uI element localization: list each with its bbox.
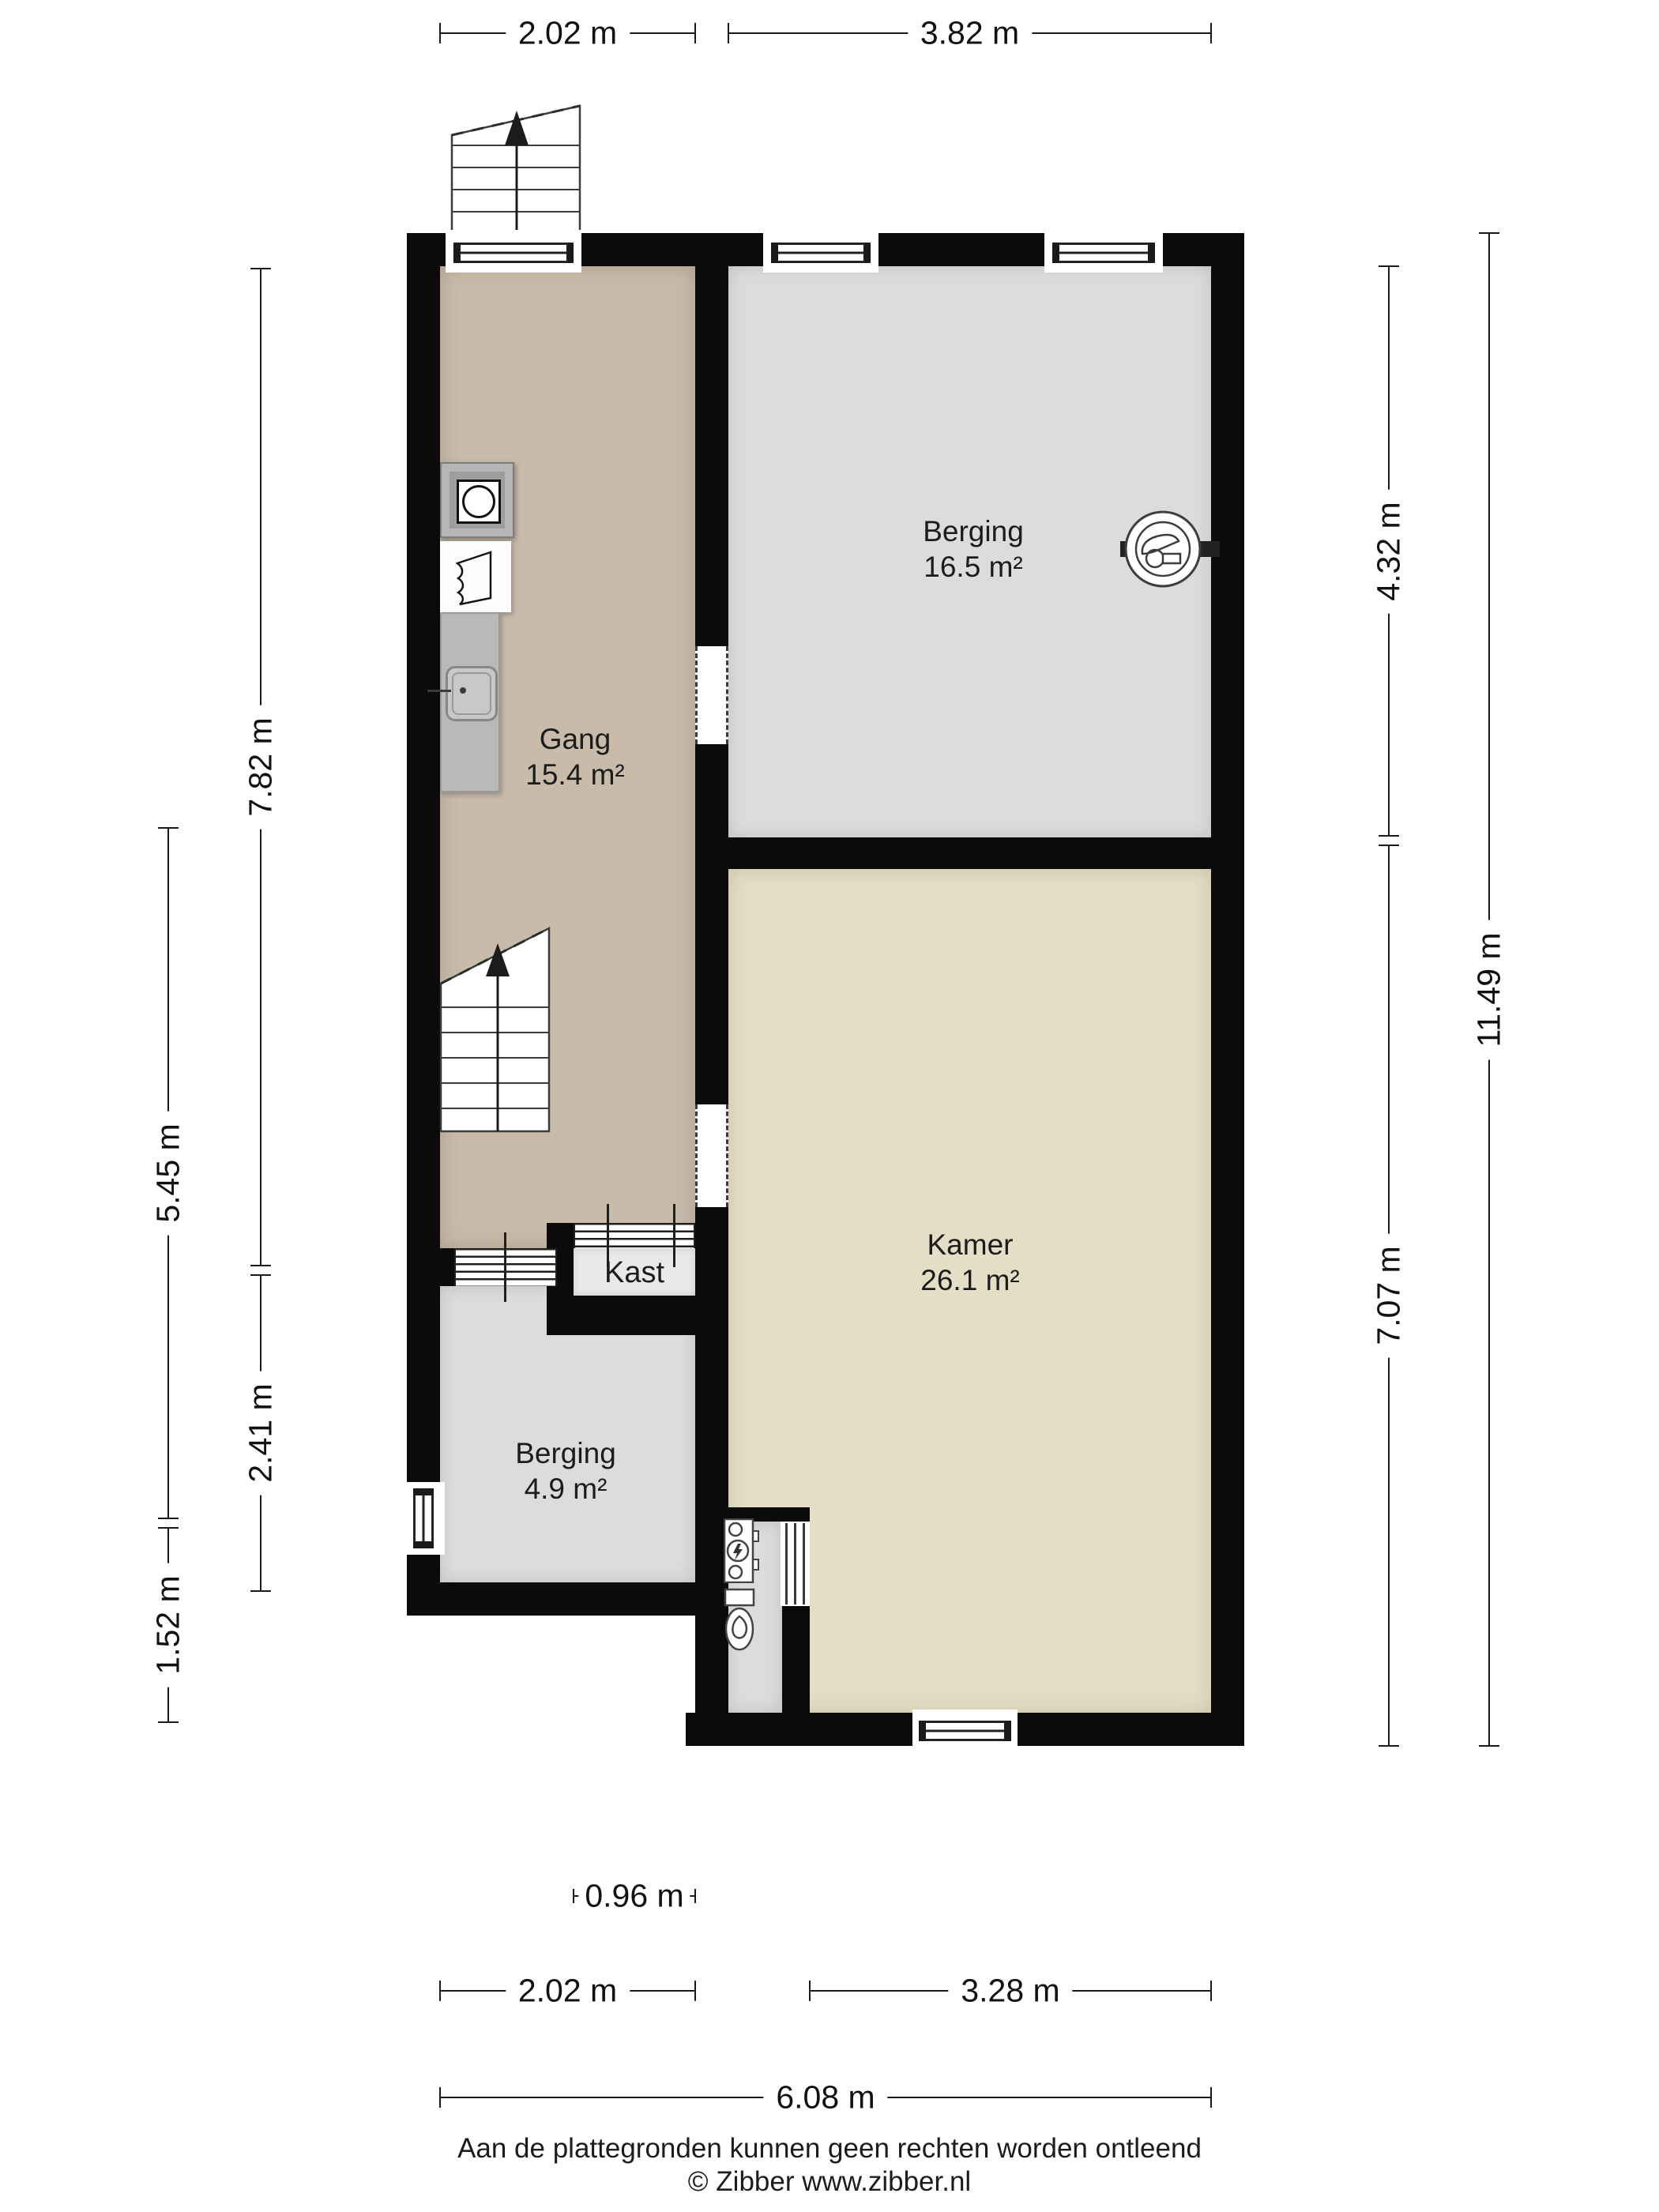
room-area: 15.4 m² <box>525 757 624 792</box>
room-name: Kamer <box>920 1227 1019 1262</box>
room-area: 26.1 m² <box>920 1262 1019 1298</box>
faucet-icon <box>427 690 451 692</box>
room-label-kamer: Kamer 26.1 m² <box>920 1227 1019 1298</box>
door-wc-niche <box>781 1522 810 1606</box>
faucet-dot <box>460 687 466 694</box>
exterior-stairs-up-icon <box>447 100 585 235</box>
dimension-label: 0.96 m <box>578 1876 690 1917</box>
washing-machine-icon <box>440 462 514 538</box>
room-label-berging-boven: Berging 16.5 m² <box>923 513 1024 585</box>
dimension-label: 2.41 m <box>241 1371 281 1495</box>
wall-berging-kamer <box>728 837 1211 869</box>
room-label-kast: Kast <box>604 1255 664 1291</box>
washing-machine-drum <box>462 485 495 518</box>
washing-machine-door <box>457 480 501 524</box>
electric-water-heater-icon <box>724 1518 762 1583</box>
window-kamer-bottom <box>912 1710 1018 1749</box>
footer-disclaimer: Aan de plattegronden kunnen geen rechten… <box>0 2133 1659 2165</box>
wall-left <box>407 233 440 1616</box>
kitchen-sink-basin <box>452 672 491 715</box>
boiler-icon <box>1119 505 1223 593</box>
room-name: Kast <box>604 1255 664 1291</box>
window-glass <box>1054 243 1153 263</box>
dimension-label: 1.52 m <box>149 1563 189 1687</box>
dimension-label: 4.32 m <box>1369 489 1409 613</box>
dimension-label: 5.45 m <box>149 1111 189 1235</box>
wall-wc-right <box>782 1606 810 1713</box>
window-berging-top-left <box>763 230 878 273</box>
window-berging-top-right <box>1044 230 1163 273</box>
floor-plan: Berging 16.5 m² Gang 15.4 m² Kamer 26.1 … <box>0 0 1659 2212</box>
dimension-label: 2.02 m <box>506 13 630 54</box>
kitchen-counter-icon <box>440 612 500 792</box>
room-name: Berging <box>923 513 1024 549</box>
door-gang-berging-boven <box>695 646 728 744</box>
dimension-label: 7.82 m <box>241 705 281 829</box>
window-glass <box>773 243 869 263</box>
dimension-label: 11.49 m <box>1469 920 1510 1059</box>
sliding-door-kast <box>574 1223 695 1248</box>
room-area: 4.9 m² <box>515 1471 616 1507</box>
wall-middle-vertical <box>695 266 728 1713</box>
wall-kast-bottom <box>547 1296 728 1335</box>
footer-copyright: © Zibber www.zibber.nl <box>0 2166 1659 2198</box>
room-label-berging-beneden: Berging 4.9 m² <box>515 1435 616 1507</box>
wall-right <box>1211 233 1244 1746</box>
room-label-gang: Gang 15.4 m² <box>525 721 624 792</box>
door-exterior-left <box>402 1482 445 1555</box>
toilet-icon <box>724 1588 757 1656</box>
door-gang-kamer <box>695 1104 728 1207</box>
dimension-label: 6.08 m <box>763 2078 887 2118</box>
window-glass <box>920 1721 1010 1741</box>
window-gang-top <box>446 230 581 273</box>
door-lines <box>785 1523 805 1604</box>
wall-berging-bottom <box>407 1582 728 1616</box>
laundry-sink-icon <box>440 541 511 612</box>
dimension-label: 3.82 m <box>908 13 1032 54</box>
sliding-door-tick <box>504 1232 506 1302</box>
kitchen-sink-icon <box>446 666 498 721</box>
dimension-label: 7.07 m <box>1369 1233 1409 1357</box>
sliding-door-tick <box>673 1204 675 1267</box>
room-area: 16.5 m² <box>923 549 1024 585</box>
window-glass <box>455 243 572 263</box>
room-name: Gang <box>525 721 624 757</box>
dimension-label: 2.02 m <box>506 1971 630 2011</box>
dimension-label: 3.28 m <box>948 1971 1072 2011</box>
room-name: Berging <box>515 1435 616 1471</box>
door-glass <box>413 1490 434 1547</box>
interior-stairs-up-icon <box>438 923 553 1134</box>
